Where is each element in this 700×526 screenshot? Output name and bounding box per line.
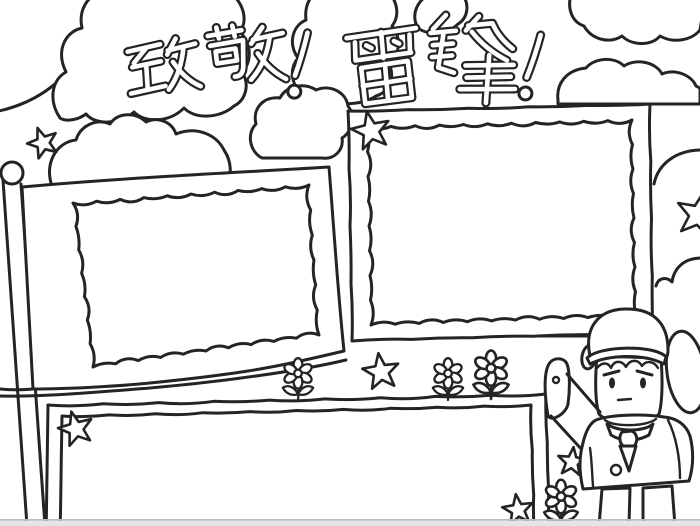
jacket-button xyxy=(611,465,621,475)
boy-face xyxy=(596,356,662,423)
flag-pole-ball xyxy=(1,162,23,184)
poster: 致敬！雷锋！ xyxy=(0,0,700,526)
cloud-top-right xyxy=(570,0,700,44)
flower-2 xyxy=(433,358,464,400)
eye-right xyxy=(640,378,646,389)
thumb-dot xyxy=(553,377,559,383)
boy-jacket xyxy=(580,415,693,489)
star-right-edge xyxy=(673,187,700,239)
title-char-feng xyxy=(426,13,520,105)
eye-left xyxy=(609,378,615,389)
bottom-frame-outer xyxy=(46,394,550,526)
cloud-right-upper xyxy=(558,59,700,104)
flag-hem-line-1 xyxy=(0,389,33,390)
salute-hand xyxy=(545,359,569,418)
bottom-text-frame xyxy=(46,394,550,526)
cloud-right-edge-2 xyxy=(656,258,700,286)
title-exclaim-2 xyxy=(518,33,541,101)
photo-edge-line xyxy=(0,519,700,521)
star-flower-row xyxy=(360,351,401,390)
cloud-right-edge-1 xyxy=(654,150,700,184)
flower-3 xyxy=(473,351,509,399)
photo-edge-strip xyxy=(0,521,700,526)
mouth xyxy=(618,399,631,400)
poster-drawing xyxy=(0,0,700,526)
flower-1 xyxy=(283,358,314,400)
cloud-mid xyxy=(250,86,352,158)
right-text-frame xyxy=(348,104,653,341)
right-frame-outer xyxy=(348,104,653,341)
flag-outline xyxy=(22,167,344,389)
